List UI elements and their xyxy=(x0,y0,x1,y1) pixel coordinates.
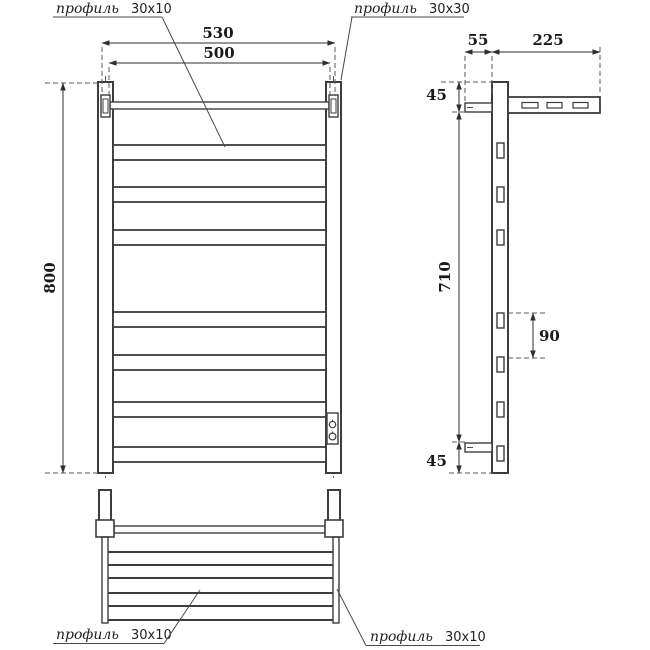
label-post-profile-top: профиль 30x30 xyxy=(341,0,470,80)
top-left-leg xyxy=(102,537,108,623)
top-shelf-bar xyxy=(114,526,325,533)
leader-line xyxy=(341,17,352,80)
dim-90: 90 xyxy=(508,313,560,358)
top-right-bracket-post xyxy=(328,490,340,521)
top-right-leg xyxy=(333,537,339,623)
label-rail-profile-size: 30x10 xyxy=(131,2,172,17)
rail-slot xyxy=(497,446,504,461)
dim-225-value: 225 xyxy=(532,31,563,49)
label-rail-profile-bottom-left: профиль 30x10 xyxy=(53,590,200,644)
label-rail-profile-top: профиль 30x10 xyxy=(53,0,225,147)
control-unit xyxy=(327,413,338,444)
label-post-profile-size: 30x30 xyxy=(429,2,470,17)
top-view: профиль 30x10 профиль 30x10 xyxy=(53,490,486,646)
dim-55-225: 55 225 xyxy=(465,31,600,101)
leader-line xyxy=(164,590,200,644)
label-rail-profile-name: профиль xyxy=(56,1,119,17)
top-right-clamp xyxy=(325,520,343,537)
side-view: 55 225 45 710 45 90 xyxy=(426,31,600,473)
top-left-clamp xyxy=(96,520,114,537)
dim-top-45-value: 45 xyxy=(426,86,447,104)
dim-90-value: 90 xyxy=(539,327,560,345)
rail-slot xyxy=(497,230,504,245)
dim-45-710-45: 45 710 45 xyxy=(426,82,492,473)
dim-710-value: 710 xyxy=(436,261,454,292)
label-post-profile-name: профиль xyxy=(354,1,417,17)
rail xyxy=(113,355,326,370)
front-left-post xyxy=(98,82,113,473)
dim-800: 800 xyxy=(41,83,98,473)
rail-slot xyxy=(497,143,504,158)
rail xyxy=(113,447,326,462)
rail xyxy=(113,145,326,160)
technical-drawing-towel-rail: 530 500 800 профиль 30x10 xyxy=(0,0,650,650)
svg-text:профиль 30x30: профиль 30x30 xyxy=(354,0,470,17)
dim-bottom-45-value: 45 xyxy=(426,452,447,470)
svg-text:профиль 30x10: профиль 30x10 xyxy=(56,0,172,17)
front-left-clamp-slot xyxy=(103,99,108,113)
shelf-slot xyxy=(522,103,538,109)
front-right-clamp-slot xyxy=(331,99,336,113)
top-left-bracket-post xyxy=(99,490,111,521)
label-size: 30x10 xyxy=(445,630,486,645)
leader-line xyxy=(337,589,366,646)
rail-slot xyxy=(497,313,504,328)
svg-text:профиль 30x10: профиль 30x10 xyxy=(370,626,486,645)
rail xyxy=(113,187,326,202)
drawing-svg: 530 500 800 профиль 30x10 xyxy=(0,0,650,650)
dim-500: 500 xyxy=(109,44,330,96)
shelf-slot xyxy=(573,103,588,109)
front-top-shelf-bar xyxy=(110,102,329,109)
rail-slot xyxy=(497,357,504,372)
rail-slot xyxy=(497,402,504,417)
label-name: профиль xyxy=(370,629,433,645)
front-view: 530 500 800 профиль 30x10 xyxy=(41,0,470,478)
rail xyxy=(113,402,326,417)
shelf-slot xyxy=(547,103,562,109)
label-name: профиль xyxy=(56,627,119,643)
label-rail-profile-bottom-right: профиль 30x10 xyxy=(337,589,486,646)
svg-text:профиль 30x10: профиль 30x10 xyxy=(56,624,172,643)
rail xyxy=(113,312,326,327)
dim-500-value: 500 xyxy=(203,44,234,62)
dim-55-value: 55 xyxy=(468,31,489,49)
rail xyxy=(113,230,326,245)
rail-slot xyxy=(497,187,504,202)
dim-800-value: 800 xyxy=(41,262,59,293)
dim-530-value: 530 xyxy=(202,24,233,42)
